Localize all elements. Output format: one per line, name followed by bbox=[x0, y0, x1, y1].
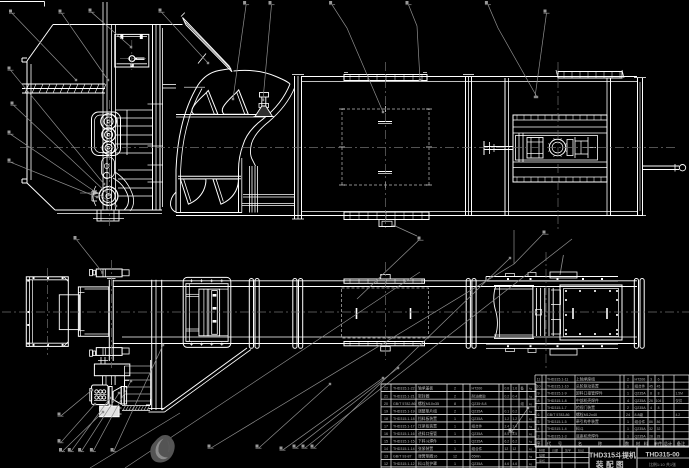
svg-text:耐油橡胶: 耐油橡胶 bbox=[472, 393, 487, 398]
svg-text:螺栓M12x40: 螺栓M12x40 bbox=[576, 412, 597, 417]
svg-text:THD315.1-19: THD315.1-19 bbox=[393, 409, 415, 413]
svg-text:料斗: 料斗 bbox=[576, 426, 584, 431]
svg-text:审核: 审核 bbox=[539, 458, 545, 463]
svg-text:2: 2 bbox=[454, 387, 456, 391]
svg-text:THD315.1-16: THD315.1-16 bbox=[393, 432, 415, 436]
svg-text:1.5M: 1.5M bbox=[676, 392, 684, 396]
svg-text:Q235A: Q235A bbox=[635, 392, 647, 396]
svg-text:12: 12 bbox=[513, 447, 517, 451]
svg-text:THD315.1-11: THD315.1-11 bbox=[547, 378, 568, 382]
svg-text:1.6: 1.6 bbox=[513, 387, 518, 391]
svg-text:45: 45 bbox=[657, 385, 661, 389]
svg-text:THD315.1-9: THD315.1-9 bbox=[547, 392, 567, 396]
svg-text:HT200: HT200 bbox=[635, 378, 646, 382]
svg-text:Q235A: Q235A bbox=[635, 399, 647, 403]
svg-text:4: 4 bbox=[538, 427, 540, 431]
svg-text:1: 1 bbox=[454, 462, 456, 466]
svg-text:kg: kg bbox=[529, 387, 533, 391]
svg-text:弹簧垫圈16: 弹簧垫圈16 bbox=[418, 454, 437, 459]
svg-text:THD315.1-21: THD315.1-21 bbox=[393, 394, 415, 398]
svg-text:THD315.1-14: THD315.1-14 bbox=[393, 447, 415, 451]
svg-text:14: 14 bbox=[384, 447, 388, 451]
svg-text:12: 12 bbox=[505, 447, 509, 451]
svg-text:0.2: 0.2 bbox=[505, 394, 510, 398]
svg-text:THD315.1-12: THD315.1-12 bbox=[393, 462, 415, 466]
svg-text:8.5: 8.5 bbox=[513, 432, 518, 436]
svg-text:THD315.1-3: THD315.1-3 bbox=[547, 434, 567, 438]
svg-text:12: 12 bbox=[384, 462, 388, 466]
svg-text:料斗防护罩: 料斗防护罩 bbox=[418, 461, 437, 466]
svg-text:中部机壳焊件: 中部机壳焊件 bbox=[576, 398, 599, 403]
svg-text:组合件: 组合件 bbox=[635, 384, 646, 389]
svg-text:1.2: 1.2 bbox=[513, 417, 518, 421]
svg-text:压紧板装置: 压紧板装置 bbox=[418, 423, 437, 428]
svg-text:5: 5 bbox=[538, 420, 540, 424]
svg-text:密封圈: 密封圈 bbox=[418, 393, 430, 398]
svg-text:21: 21 bbox=[384, 394, 388, 398]
svg-text:序: 序 bbox=[536, 440, 540, 447]
svg-text:THD315.1-22: THD315.1-22 bbox=[393, 387, 415, 391]
svg-text:THD315.1-4: THD315.1-4 bbox=[547, 427, 567, 431]
svg-text:THD315.1-17: THD315.1-17 bbox=[393, 424, 415, 428]
svg-text:4.6: 4.6 bbox=[505, 462, 510, 466]
svg-text:28: 28 bbox=[657, 434, 661, 438]
svg-text:11: 11 bbox=[537, 378, 541, 382]
svg-text:8: 8 bbox=[658, 392, 660, 396]
svg-text:1: 1 bbox=[454, 447, 456, 451]
svg-text:32: 32 bbox=[657, 427, 661, 431]
svg-text:86: 86 bbox=[649, 420, 653, 424]
svg-text:20: 20 bbox=[384, 402, 388, 406]
svg-text:kg: kg bbox=[529, 462, 533, 466]
svg-text:Q235A: Q235A bbox=[635, 406, 647, 410]
svg-text:Q235A: Q235A bbox=[472, 462, 484, 466]
svg-text:8.8级: 8.8级 bbox=[635, 412, 644, 417]
svg-text:日期: 日期 bbox=[552, 447, 558, 452]
svg-text:4: 4 bbox=[627, 399, 629, 403]
svg-text:THD315.1-10: THD315.1-10 bbox=[547, 385, 569, 389]
svg-text:THD315.1-15: THD315.1-15 bbox=[393, 440, 415, 444]
svg-text:THD315.1-5: THD315.1-5 bbox=[547, 420, 567, 424]
svg-text:1: 1 bbox=[454, 432, 456, 436]
svg-text:底座机壳焊件: 底座机壳焊件 bbox=[576, 433, 599, 438]
svg-text:6.2: 6.2 bbox=[505, 440, 510, 444]
svg-text:下料斗焊件: 下料斗焊件 bbox=[418, 439, 437, 444]
svg-text:1: 1 bbox=[627, 385, 629, 389]
svg-text:牵引构件装置: 牵引构件装置 bbox=[576, 419, 599, 424]
svg-text:标记: 标记 bbox=[578, 447, 584, 452]
svg-text:检视门装置: 检视门装置 bbox=[576, 405, 595, 410]
svg-text:比例1:10 共1张: 比例1:10 共1张 bbox=[649, 461, 676, 467]
svg-text:kg: kg bbox=[529, 417, 533, 421]
svg-text:THD315-00: THD315-00 bbox=[645, 452, 679, 459]
svg-text:2.4: 2.4 bbox=[513, 424, 518, 428]
svg-text:104: 104 bbox=[656, 399, 662, 403]
svg-text:备注: 备注 bbox=[677, 440, 686, 447]
svg-text:4.6: 4.6 bbox=[513, 462, 518, 466]
svg-text:8.5: 8.5 bbox=[505, 432, 510, 436]
svg-text:1: 1 bbox=[454, 424, 456, 428]
svg-text:装配图: 装配图 bbox=[595, 459, 626, 468]
svg-text:17: 17 bbox=[384, 424, 388, 428]
svg-text:螺栓M10x35: 螺栓M10x35 bbox=[418, 401, 439, 406]
svg-text:8: 8 bbox=[650, 392, 652, 396]
svg-text:45: 45 bbox=[649, 385, 653, 389]
svg-text:1: 1 bbox=[627, 420, 629, 424]
svg-text:仅供: 仅供 bbox=[676, 398, 683, 403]
svg-text:Q235A: Q235A bbox=[472, 432, 484, 436]
svg-text:THD315.1-18: THD315.1-18 bbox=[393, 417, 415, 421]
svg-text:挡料板装置: 挡料板装置 bbox=[418, 416, 437, 421]
svg-text:18: 18 bbox=[384, 417, 388, 421]
svg-text:GB/T 5782-86: GB/T 5782-86 bbox=[393, 402, 416, 406]
svg-text:材: 材 bbox=[636, 440, 640, 446]
svg-text:组合件: 组合件 bbox=[635, 419, 646, 424]
svg-text:2: 2 bbox=[627, 406, 629, 410]
svg-text:称: 称 bbox=[598, 440, 602, 447]
svg-text:2: 2 bbox=[627, 378, 629, 382]
svg-text:13: 13 bbox=[384, 455, 388, 459]
svg-text:HT200: HT200 bbox=[472, 387, 483, 391]
svg-text:卸料口接管焊件: 卸料口接管焊件 bbox=[576, 391, 603, 396]
svg-text:0.2: 0.2 bbox=[513, 409, 518, 413]
svg-text:26: 26 bbox=[649, 399, 653, 403]
svg-text:GB/T 93-87: GB/T 93-87 bbox=[393, 455, 412, 459]
svg-text:kg: kg bbox=[529, 394, 533, 398]
svg-text:10: 10 bbox=[537, 385, 541, 389]
svg-text:1: 1 bbox=[454, 417, 456, 421]
svg-text:8: 8 bbox=[658, 406, 660, 410]
svg-text:kg: kg bbox=[529, 402, 533, 406]
svg-text:1.2: 1.2 bbox=[505, 417, 510, 421]
svg-text:描图: 描图 bbox=[539, 453, 545, 458]
svg-text:Q235A: Q235A bbox=[635, 434, 647, 438]
svg-text:调整垫片组: 调整垫片组 bbox=[418, 408, 437, 413]
svg-text:6.2: 6.2 bbox=[513, 440, 518, 444]
svg-text:Q235A: Q235A bbox=[472, 417, 484, 421]
svg-text:Q235A: Q235A bbox=[472, 409, 484, 413]
svg-text:0.4: 0.4 bbox=[513, 394, 518, 398]
svg-text:16: 16 bbox=[384, 432, 388, 436]
svg-text:19: 19 bbox=[384, 409, 388, 413]
svg-text:1: 1 bbox=[454, 440, 456, 444]
svg-text:制图: 制图 bbox=[539, 447, 545, 452]
svg-text:12: 12 bbox=[453, 455, 457, 459]
svg-text:7: 7 bbox=[538, 406, 540, 410]
svg-text:0.1: 0.1 bbox=[505, 409, 510, 413]
svg-text:上轴承座组: 上轴承座组 bbox=[576, 377, 595, 382]
svg-text:总计: 总计 bbox=[664, 440, 672, 447]
svg-text:22: 22 bbox=[384, 387, 388, 391]
svg-text:1: 1 bbox=[627, 427, 629, 431]
svg-text:GB/T 5783-86: GB/T 5783-86 bbox=[547, 413, 570, 417]
svg-text:组合件: 组合件 bbox=[472, 423, 483, 428]
svg-text:6: 6 bbox=[538, 413, 540, 417]
svg-text:4: 4 bbox=[650, 406, 652, 410]
svg-text:6: 6 bbox=[658, 378, 660, 382]
svg-text:Q235A: Q235A bbox=[635, 427, 647, 431]
svg-text:单件: 单件 bbox=[654, 440, 662, 447]
svg-text:3: 3 bbox=[650, 378, 652, 382]
svg-text:65Mn: 65Mn bbox=[472, 455, 481, 459]
svg-text:86: 86 bbox=[657, 420, 661, 424]
svg-text:kg: kg bbox=[529, 424, 533, 428]
svg-text:1: 1 bbox=[627, 434, 629, 438]
svg-text:32: 32 bbox=[649, 427, 653, 431]
svg-text:1: 1 bbox=[627, 392, 629, 396]
svg-text:28: 28 bbox=[649, 434, 653, 438]
svg-text:进料口接管: 进料口接管 bbox=[418, 431, 437, 436]
svg-text:THD315.1-8: THD315.1-8 bbox=[547, 399, 567, 403]
svg-text:2: 2 bbox=[454, 409, 456, 413]
svg-text:Q235·8.8: Q235·8.8 bbox=[472, 402, 487, 406]
svg-text:签字: 签字 bbox=[565, 447, 571, 452]
svg-text:0.8: 0.8 bbox=[505, 387, 510, 391]
svg-text:kg: kg bbox=[529, 432, 533, 436]
svg-text:9: 9 bbox=[538, 392, 540, 396]
svg-text:轴承盖板: 轴承盖板 bbox=[418, 386, 433, 391]
svg-text:头轮驱动装置: 头轮驱动装置 bbox=[576, 384, 599, 389]
svg-text:kg: kg bbox=[529, 447, 533, 451]
svg-text:24: 24 bbox=[626, 413, 630, 417]
svg-text:THD315.1-7: THD315.1-7 bbox=[547, 406, 567, 410]
svg-text:张紧装置: 张紧装置 bbox=[418, 446, 433, 451]
svg-text:8: 8 bbox=[454, 402, 456, 406]
svg-text:kg: kg bbox=[529, 440, 533, 444]
svg-text:组合件: 组合件 bbox=[472, 446, 483, 451]
svg-text:名: 名 bbox=[578, 440, 582, 447]
svg-text:kg: kg bbox=[529, 455, 533, 459]
svg-text:THD315斗提机: THD315斗提机 bbox=[589, 451, 636, 460]
svg-text:3: 3 bbox=[538, 434, 540, 438]
svg-text:2.4: 2.4 bbox=[505, 424, 510, 428]
svg-text:4.2: 4.2 bbox=[676, 413, 681, 417]
svg-text:8: 8 bbox=[538, 399, 540, 403]
svg-text:15: 15 bbox=[384, 440, 388, 444]
svg-text:Q235A: Q235A bbox=[472, 440, 484, 444]
svg-text:kg: kg bbox=[529, 409, 533, 413]
svg-text:2: 2 bbox=[454, 394, 456, 398]
